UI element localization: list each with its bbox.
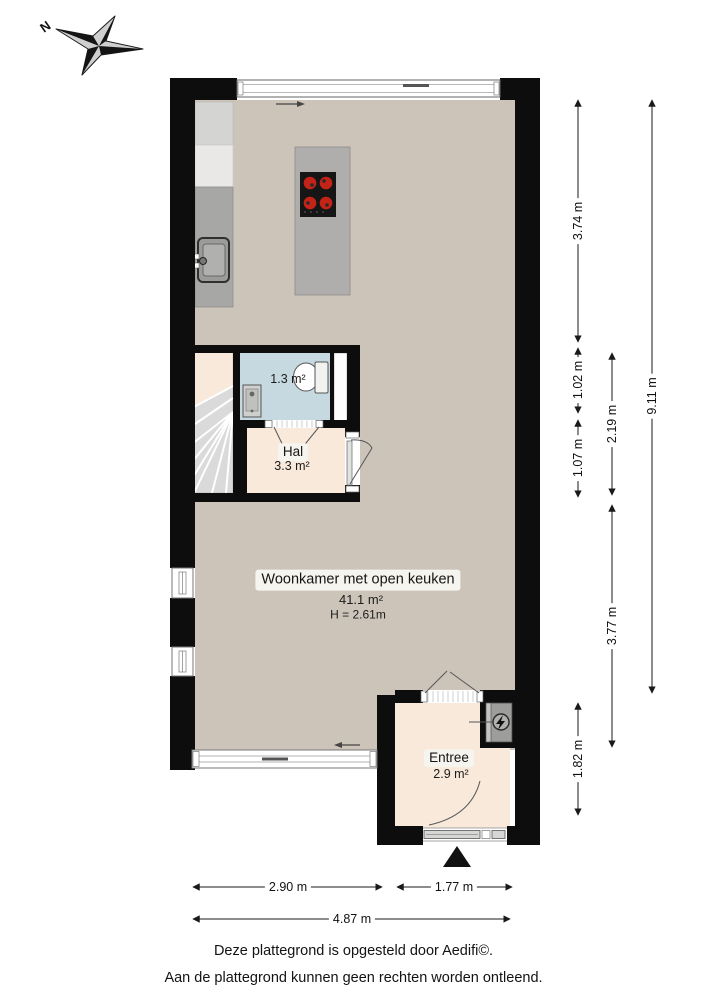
room-area-toilet: 1.3 m² (270, 373, 305, 387)
dim-label-3-74: 3.74 m (571, 198, 585, 244)
window-handle (403, 84, 429, 87)
slider-handle (262, 758, 288, 761)
kitchen-cabinet (195, 145, 233, 187)
top-sliding-window (237, 80, 500, 97)
kitchen-cabinet-top (195, 102, 233, 145)
basin-faucet-icon (250, 392, 255, 397)
room-label-hal: Hal (278, 443, 308, 461)
dim-label-1-02: 1.02 m (571, 357, 585, 403)
dim-label-1-77: 1.77 m (431, 880, 477, 894)
dim-label-2-90: 2.90 m (265, 880, 311, 894)
dim-label-9-11: 9.11 m (645, 373, 659, 418)
dim-label-2-19: 2.19 m (605, 401, 619, 447)
compass-rose: N (37, 16, 143, 75)
entrance-marker-triangle (443, 846, 471, 867)
room-area-woonkamer: 41.1 m² (339, 593, 383, 607)
room-height-woonkamer: H = 2.61m (330, 608, 386, 621)
room-label-woonkamer: Woonkamer met open keuken (255, 570, 460, 591)
faucet-icon (200, 258, 207, 265)
room-label-entree: Entree (424, 749, 474, 767)
kitchen-island (295, 147, 350, 295)
basin-drain-icon (251, 410, 254, 413)
dim-label-4-87: 4.87 m (329, 912, 375, 926)
dim-label-3-77: 3.77 m (605, 603, 619, 649)
room-area-hal: 3.3 m² (274, 460, 309, 474)
footer-disclaimer: Aan de plattegrond kunnen geen rechten w… (0, 969, 707, 987)
floorplan-canvas: N Woonkamer met open keuken 41.1 m² H = … (0, 0, 707, 1000)
room-area-entree: 2.9 m² (433, 768, 468, 782)
duct-shaft (334, 353, 347, 423)
compass-north-label: N (37, 18, 53, 36)
toilet-tank (315, 362, 328, 393)
floorplan-drawing: N (0, 0, 707, 1000)
dim-label-1-82: 1.82 m (571, 736, 585, 782)
dim-label-1-07: 1.07 m (571, 435, 585, 481)
footer-credit: Deze plattegrond is opgesteld door Aedif… (0, 942, 707, 960)
